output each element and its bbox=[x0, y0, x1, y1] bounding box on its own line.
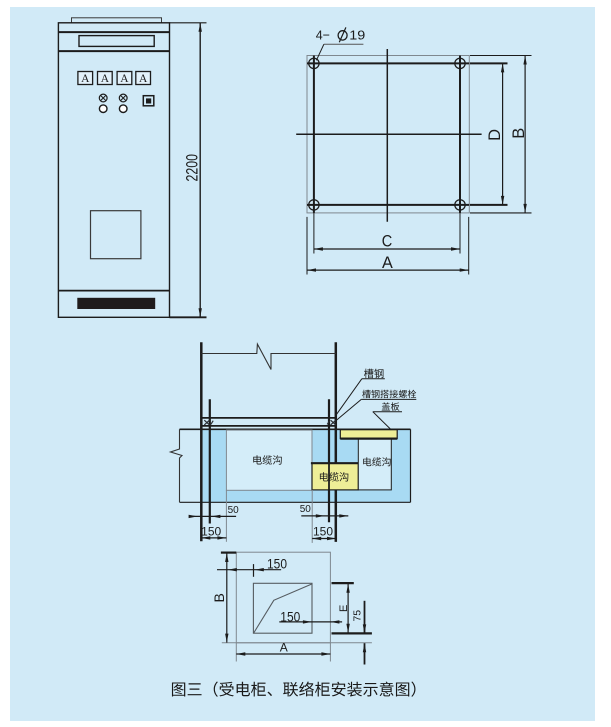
svg-text:150: 150 bbox=[267, 555, 287, 571]
svg-text:A: A bbox=[382, 254, 393, 272]
svg-text:E: E bbox=[338, 605, 350, 612]
svg-text:A: A bbox=[280, 641, 288, 655]
svg-text:19: 19 bbox=[349, 28, 365, 43]
svg-text:A: A bbox=[101, 73, 110, 85]
svg-text:50: 50 bbox=[300, 504, 312, 515]
svg-text:A: A bbox=[81, 73, 90, 85]
svg-text:50: 50 bbox=[228, 505, 240, 516]
svg-text:4−: 4− bbox=[316, 28, 330, 43]
svg-text:75: 75 bbox=[352, 610, 364, 622]
svg-text:A: A bbox=[139, 73, 148, 85]
svg-text:150: 150 bbox=[313, 524, 333, 538]
svg-text:150: 150 bbox=[280, 608, 300, 624]
svg-text:2200: 2200 bbox=[182, 154, 201, 182]
svg-text:B: B bbox=[510, 128, 528, 139]
svg-text:150: 150 bbox=[201, 524, 221, 538]
svg-text:B: B bbox=[211, 593, 227, 602]
svg-text:D: D bbox=[486, 129, 504, 141]
svg-text:C: C bbox=[382, 232, 393, 250]
svg-text:A: A bbox=[120, 73, 129, 85]
